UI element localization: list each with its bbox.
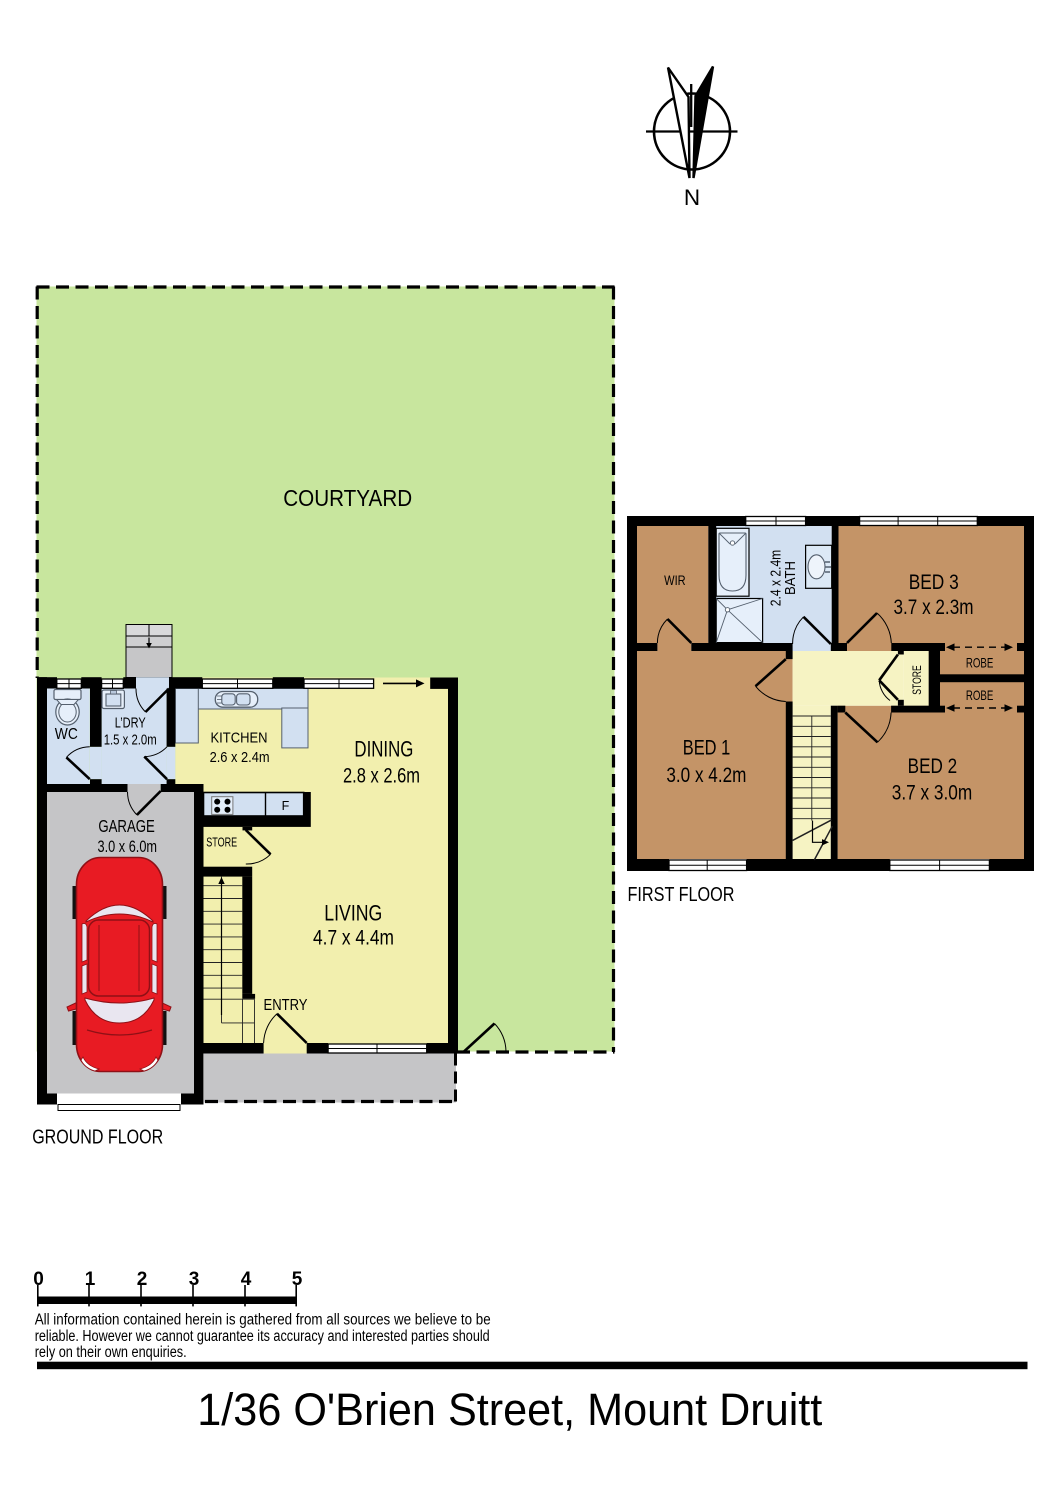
svg-text:5: 5 (292, 1269, 303, 1290)
svg-text:2: 2 (137, 1269, 148, 1290)
svg-text:BED 2: BED 2 (908, 754, 958, 778)
svg-text:GROUND FLOOR: GROUND FLOOR (32, 1127, 163, 1149)
svg-text:2.8 x 2.6m: 2.8 x 2.6m (343, 764, 420, 788)
svg-text:BED 3: BED 3 (909, 570, 959, 594)
svg-text:3.7 x 2.3m: 3.7 x 2.3m (894, 595, 974, 619)
svg-text:3.0 x 4.2m: 3.0 x 4.2m (666, 763, 746, 787)
svg-text:STORE: STORE (206, 836, 237, 850)
svg-text:COURTYARD: COURTYARD (283, 485, 412, 511)
svg-text:0: 0 (33, 1269, 44, 1290)
svg-text:1.5 x 2.0m: 1.5 x 2.0m (104, 732, 157, 748)
svg-text:L’DRY: L’DRY (115, 716, 146, 732)
svg-text:reliable. However we cannot gu: reliable. However we cannot guarantee it… (35, 1328, 490, 1345)
svg-text:BATH: BATH (783, 561, 799, 595)
svg-text:N: N (684, 185, 700, 210)
svg-text:3.0 x 6.0m: 3.0 x 6.0m (98, 837, 158, 856)
svg-text:All information contained here: All information contained herein is gath… (35, 1312, 491, 1329)
svg-text:STORE: STORE (912, 665, 924, 695)
svg-text:F: F (282, 799, 290, 813)
svg-text:KITCHEN: KITCHEN (211, 730, 268, 746)
svg-text:1: 1 (85, 1269, 96, 1290)
svg-text:DINING: DINING (354, 737, 413, 762)
svg-text:WIR: WIR (664, 572, 686, 588)
svg-text:3: 3 (189, 1269, 200, 1290)
svg-text:1/36 O'Brien Street, Mount Dru: 1/36 O'Brien Street, Mount Druitt (197, 1384, 822, 1435)
svg-text:ROBE: ROBE (966, 687, 994, 703)
svg-text:4.7 x 4.4m: 4.7 x 4.4m (313, 926, 394, 950)
svg-text:ENTRY: ENTRY (264, 997, 308, 1014)
svg-text:WC: WC (55, 726, 78, 743)
svg-text:rely on their own enquiries.: rely on their own enquiries. (35, 1344, 187, 1361)
svg-text:BED 1: BED 1 (683, 736, 731, 760)
svg-text:2.6 x 2.4m: 2.6 x 2.4m (210, 750, 270, 766)
svg-text:ROBE: ROBE (966, 655, 994, 671)
svg-text:LIVING: LIVING (324, 901, 382, 926)
svg-text:GARAGE: GARAGE (98, 816, 155, 836)
svg-text:3.7 x 3.0m: 3.7 x 3.0m (892, 780, 973, 804)
svg-text:FIRST FLOOR: FIRST FLOOR (628, 884, 735, 906)
svg-text:4: 4 (241, 1269, 252, 1290)
